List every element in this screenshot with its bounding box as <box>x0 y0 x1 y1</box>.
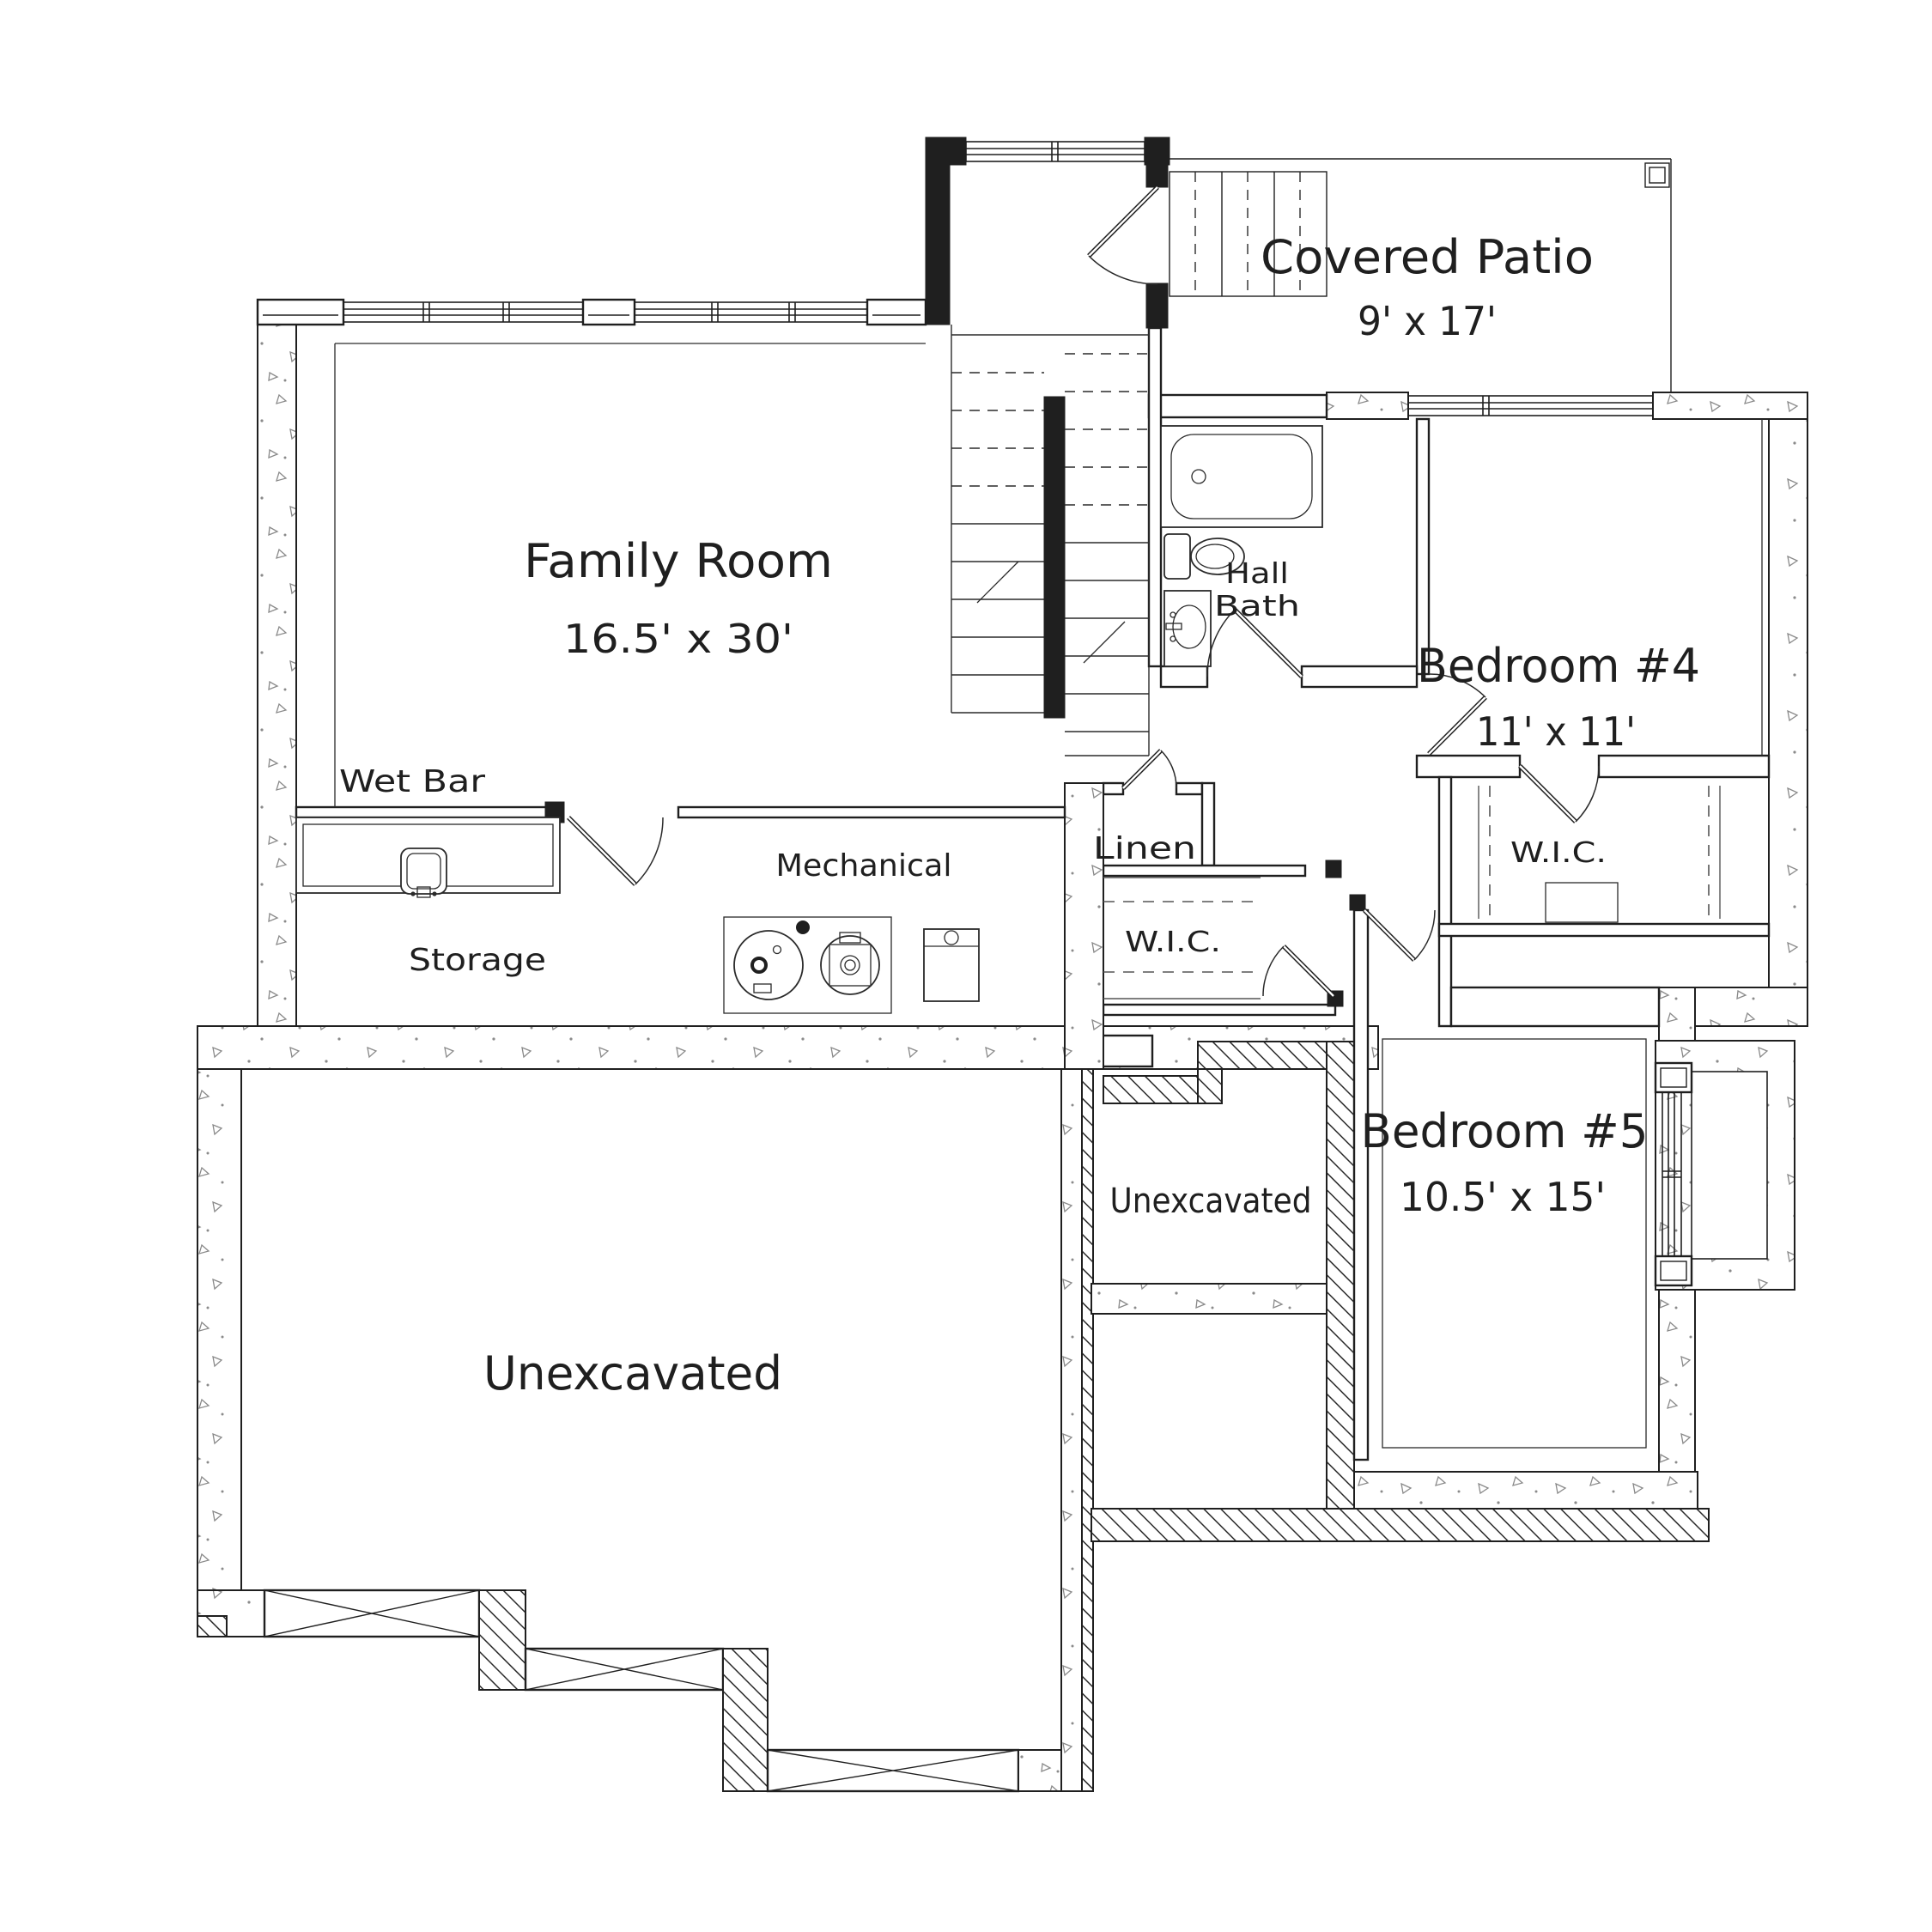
room-label-wet-bar: Wet Bar <box>339 764 485 799</box>
room-label-hall-bath-line1: Hall <box>1225 556 1289 590</box>
wall-bath-south-b <box>1302 666 1417 687</box>
water-softener <box>924 929 979 1001</box>
floor-drain <box>796 920 810 934</box>
room-label-covered-patio: Covered Patio <box>1261 230 1594 284</box>
wall-wic2-south <box>1439 924 1769 936</box>
wall-bedroom4-west <box>1417 419 1429 674</box>
room-label-wic-bedroom4: W.I.C. <box>1510 835 1607 869</box>
wet-bar-sink <box>401 848 447 897</box>
wall-mech-north <box>678 807 1065 817</box>
room-dims-bedroom4: 11' x 11' <box>1476 708 1636 755</box>
wall-bedroom5-west <box>1354 910 1368 1460</box>
step-wall-1 <box>479 1590 526 1690</box>
room-label-wic-hall: W.I.C. <box>1125 925 1221 958</box>
wall-center-vertical <box>1061 1069 1082 1791</box>
wall-center-vertical-hatch <box>1082 1069 1093 1791</box>
room-label-hall-bath-line2: Bath <box>1214 589 1300 623</box>
room-label-bedroom5: Bedroom #5 <box>1361 1104 1649 1158</box>
wall-bath-north <box>1149 395 1327 417</box>
wall-bedroom5-south <box>1354 1472 1698 1509</box>
egress-window-well <box>1656 1041 1795 1290</box>
x-brace-wall-mid <box>526 1649 723 1690</box>
vanity-sink <box>1164 591 1211 666</box>
step-wall-2 <box>723 1649 768 1791</box>
wall-bath-south-a <box>1161 666 1207 687</box>
floor-plan-page: Family Room 16.5' x 30' Covered Patio 9'… <box>0 0 1932 1932</box>
x-brace-wall-lower <box>768 1750 1018 1791</box>
wall-lower-left <box>197 1069 241 1590</box>
wall-family-left <box>258 300 296 1026</box>
room-label-unexcavated-main: Unexcavated <box>483 1346 782 1400</box>
wall-linen-north-a <box>1103 783 1123 794</box>
room-dims-family-room: 16.5' x 30' <box>563 616 793 662</box>
room-label-family-room: Family Room <box>524 534 833 588</box>
stair-divider-wall <box>1044 397 1065 718</box>
wall-bath-west <box>1149 328 1161 666</box>
room-label-storage: Storage <box>409 943 546 978</box>
wall-linen-east <box>1202 783 1214 866</box>
room-label-linen: Linen <box>1093 831 1196 866</box>
wall-right-upper <box>1769 392 1807 1026</box>
floor-plan-canvas: Family Room 16.5' x 30' Covered Patio 9'… <box>0 0 1932 1932</box>
room-label-bedroom4: Bedroom #4 <box>1417 639 1700 693</box>
wall-linen-north-b <box>1176 783 1202 794</box>
wall-wic1-north <box>1103 866 1305 876</box>
wet-bar-counter <box>296 817 560 897</box>
wall-south-hatch-band <box>1091 1509 1709 1541</box>
wall-wetbar-north <box>296 807 562 817</box>
wall-bedroom5-north <box>1451 987 1659 1026</box>
wall-bedroom4-south-a <box>1417 756 1520 777</box>
x-brace-wall-upper <box>264 1590 479 1637</box>
bathtub <box>1161 426 1322 527</box>
wall-wic2-west <box>1439 777 1451 1026</box>
wall-mech-east <box>1065 783 1103 1069</box>
room-dims-bedroom5: 10.5' x 15' <box>1400 1174 1606 1220</box>
room-label-unexcavated-crawl: Unexcavated <box>1110 1182 1312 1221</box>
wall-bedroom4-south-b <box>1599 756 1769 777</box>
room-dims-covered-patio: 9' x 17' <box>1358 298 1497 344</box>
room-label-mechanical: Mechanical <box>776 848 952 884</box>
furnace <box>734 931 803 999</box>
wall-wic1-south <box>1103 1005 1335 1015</box>
